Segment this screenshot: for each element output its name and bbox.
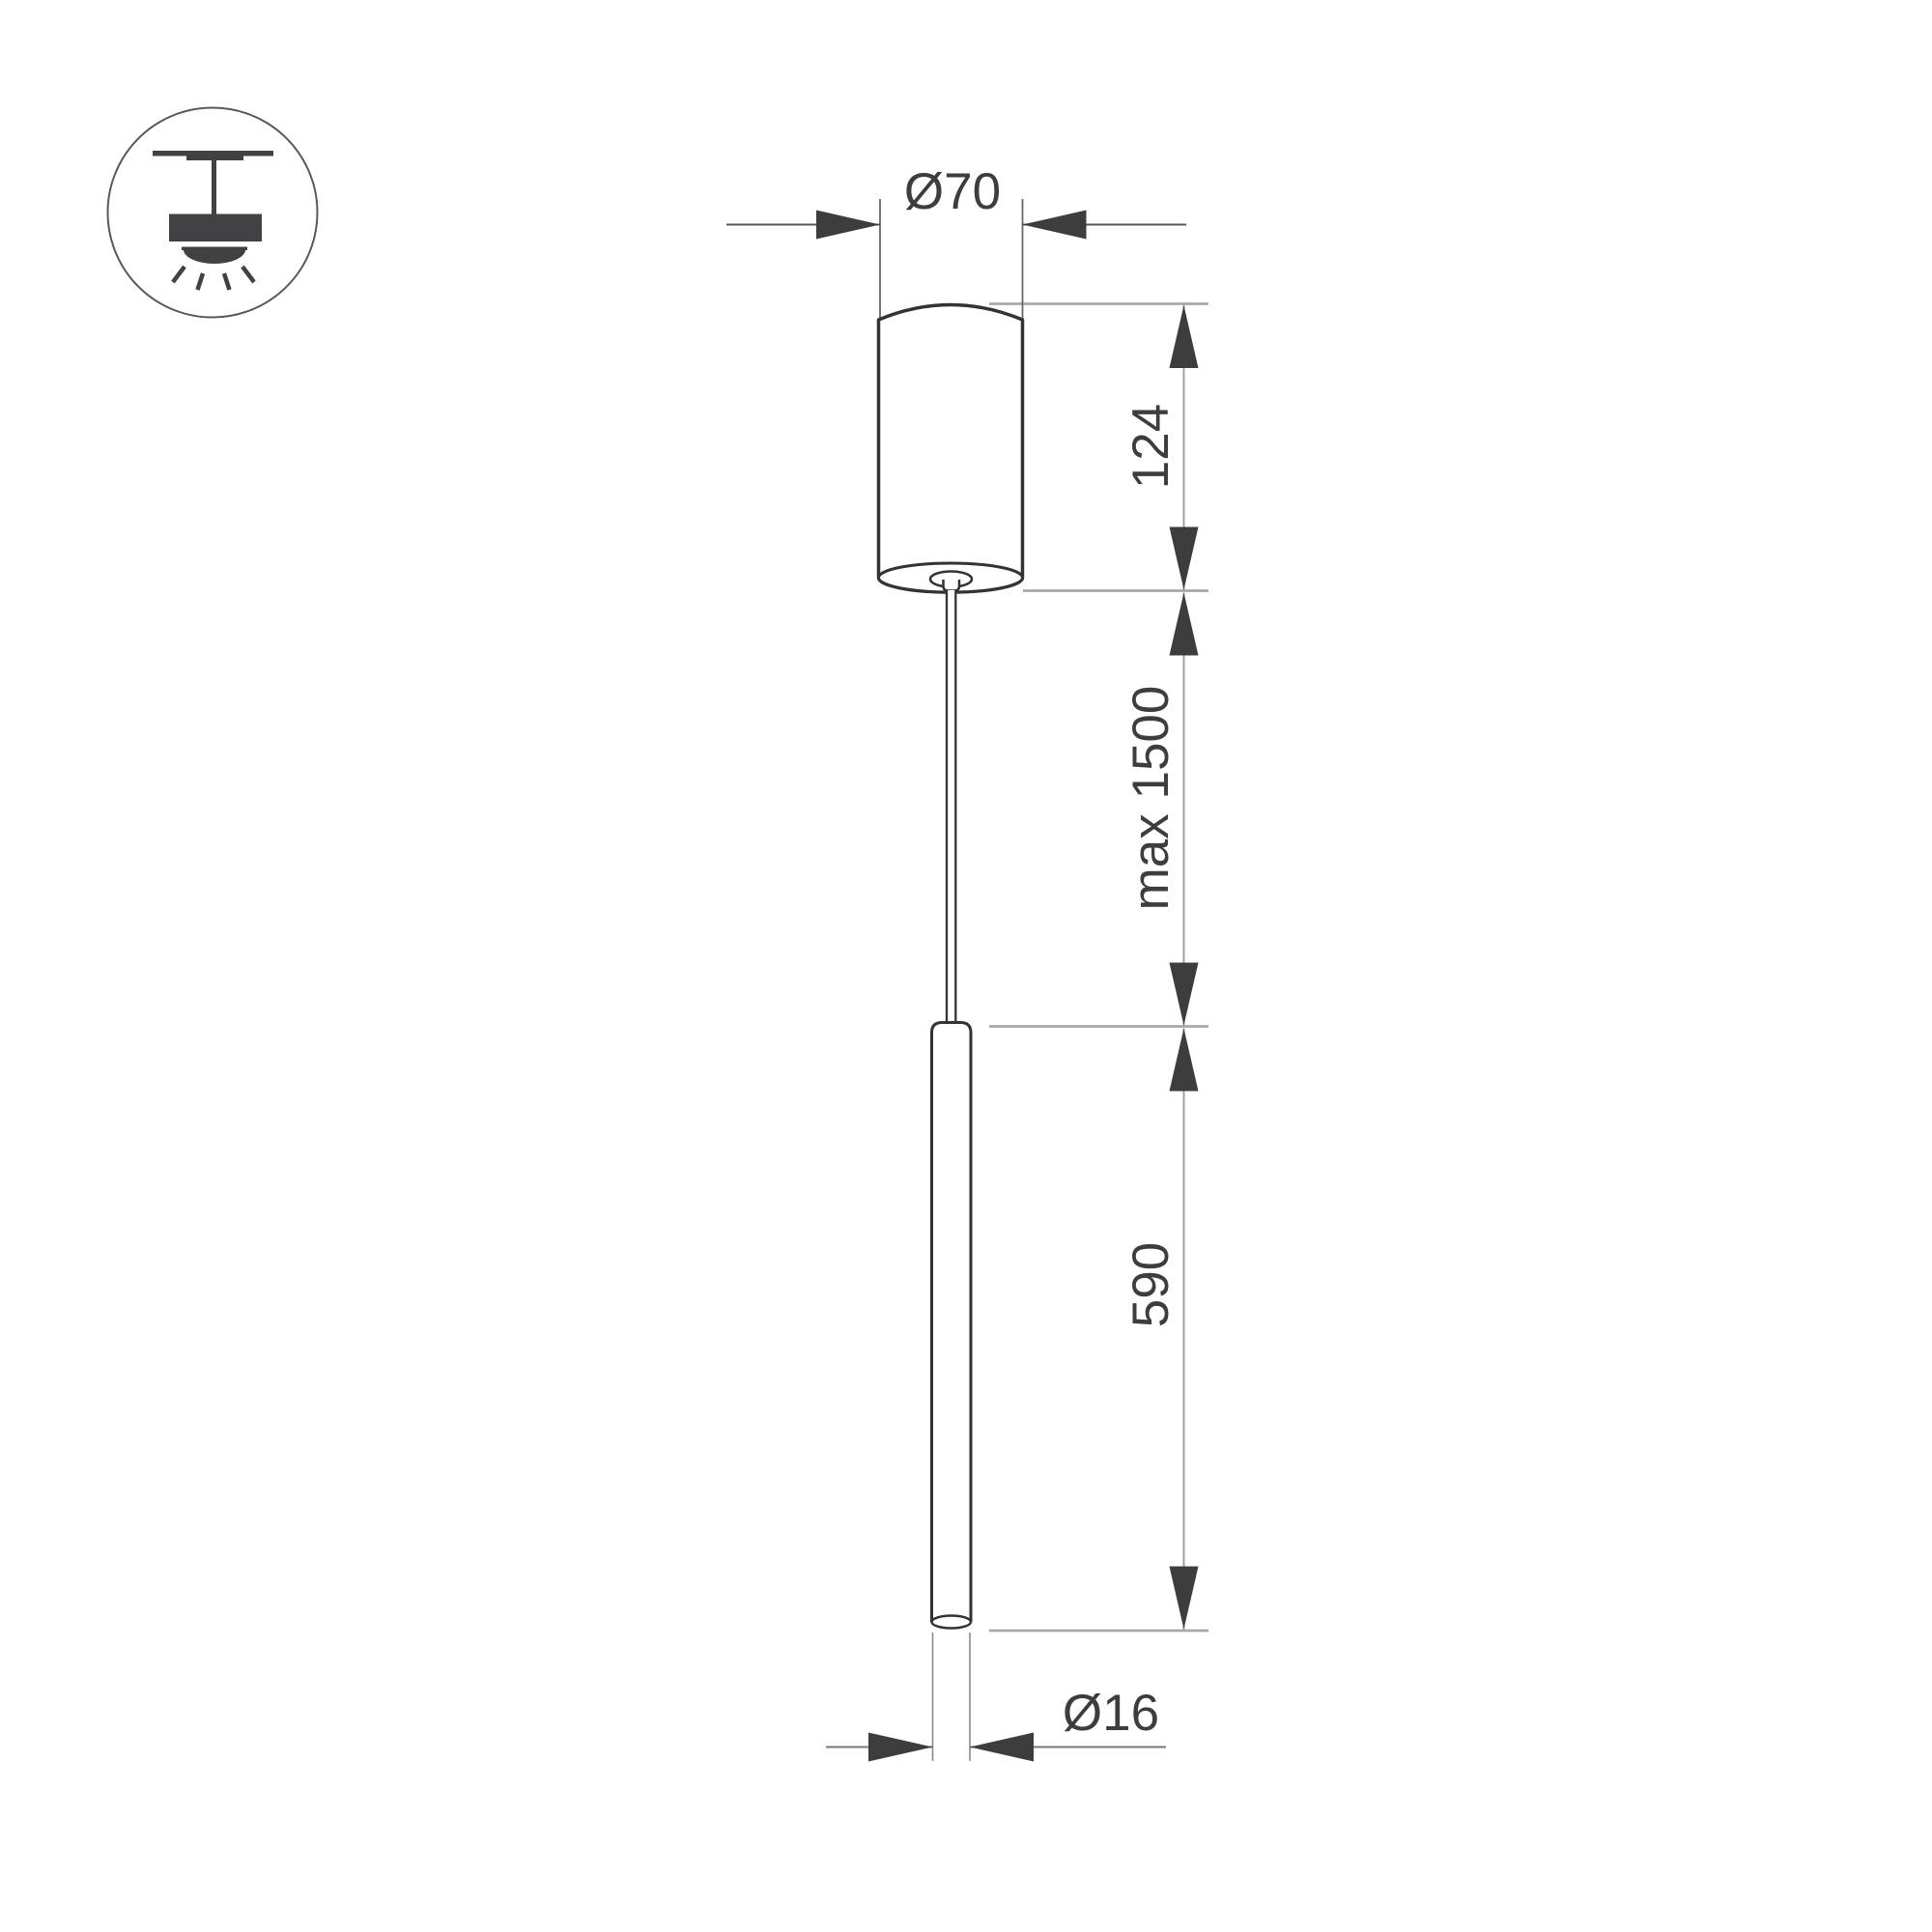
dim-tube-diameter: Ø16: [826, 1685, 1166, 1762]
arrow-590-bottom: [1170, 1567, 1199, 1630]
dim-suspension-length-label: max 1500: [1122, 686, 1179, 911]
arrow-124-bottom: [1170, 527, 1199, 590]
arrow-d70-left: [816, 211, 880, 240]
icon-stem: [212, 159, 216, 214]
dim-canopy-height: 124: [1122, 305, 1199, 590]
dim-canopy-height-label: 124: [1122, 404, 1179, 489]
dim-canopy-diameter-label: Ø70: [904, 163, 1001, 220]
arrow-d16-right: [970, 1733, 1034, 1762]
lamp-tube-bottom-rim: [932, 1616, 972, 1629]
suspension-cable-fill: [947, 590, 955, 1024]
cable-gland: [944, 580, 960, 591]
icon-mount-plate: [186, 151, 243, 160]
lamp-tube: [932, 1023, 972, 1623]
drawing-page: Ø70 124 max 1500 590 Ø16: [0, 0, 1932, 1932]
arrow-590-top: [1170, 1029, 1199, 1092]
arrow-d16-left: [868, 1733, 933, 1762]
dim-tube-diameter-label: Ø16: [1063, 1685, 1159, 1742]
dim-tube-length: 590: [1122, 1029, 1199, 1630]
icon-diffuser-top: [182, 247, 247, 251]
pendant-lamp-technical-drawing: Ø70 124 max 1500 590 Ø16: [0, 0, 1932, 1932]
arrow-max1500-bottom: [1170, 963, 1199, 1026]
dim-suspension-length: max 1500: [1122, 593, 1199, 1026]
canopy-body: [879, 305, 1023, 593]
lamp-drawing: [879, 305, 1023, 1629]
arrow-max1500-top: [1170, 593, 1199, 656]
extension-lines-vertical-bottom: [933, 1633, 971, 1761]
icon-lamp-body: [169, 214, 262, 242]
pendant-icon: [108, 108, 318, 318]
arrow-d70-right: [1023, 211, 1087, 240]
dim-tube-length-label: 590: [1122, 1242, 1179, 1327]
dim-canopy-diameter: Ø70: [726, 163, 1186, 240]
arrow-124-top: [1170, 305, 1199, 368]
